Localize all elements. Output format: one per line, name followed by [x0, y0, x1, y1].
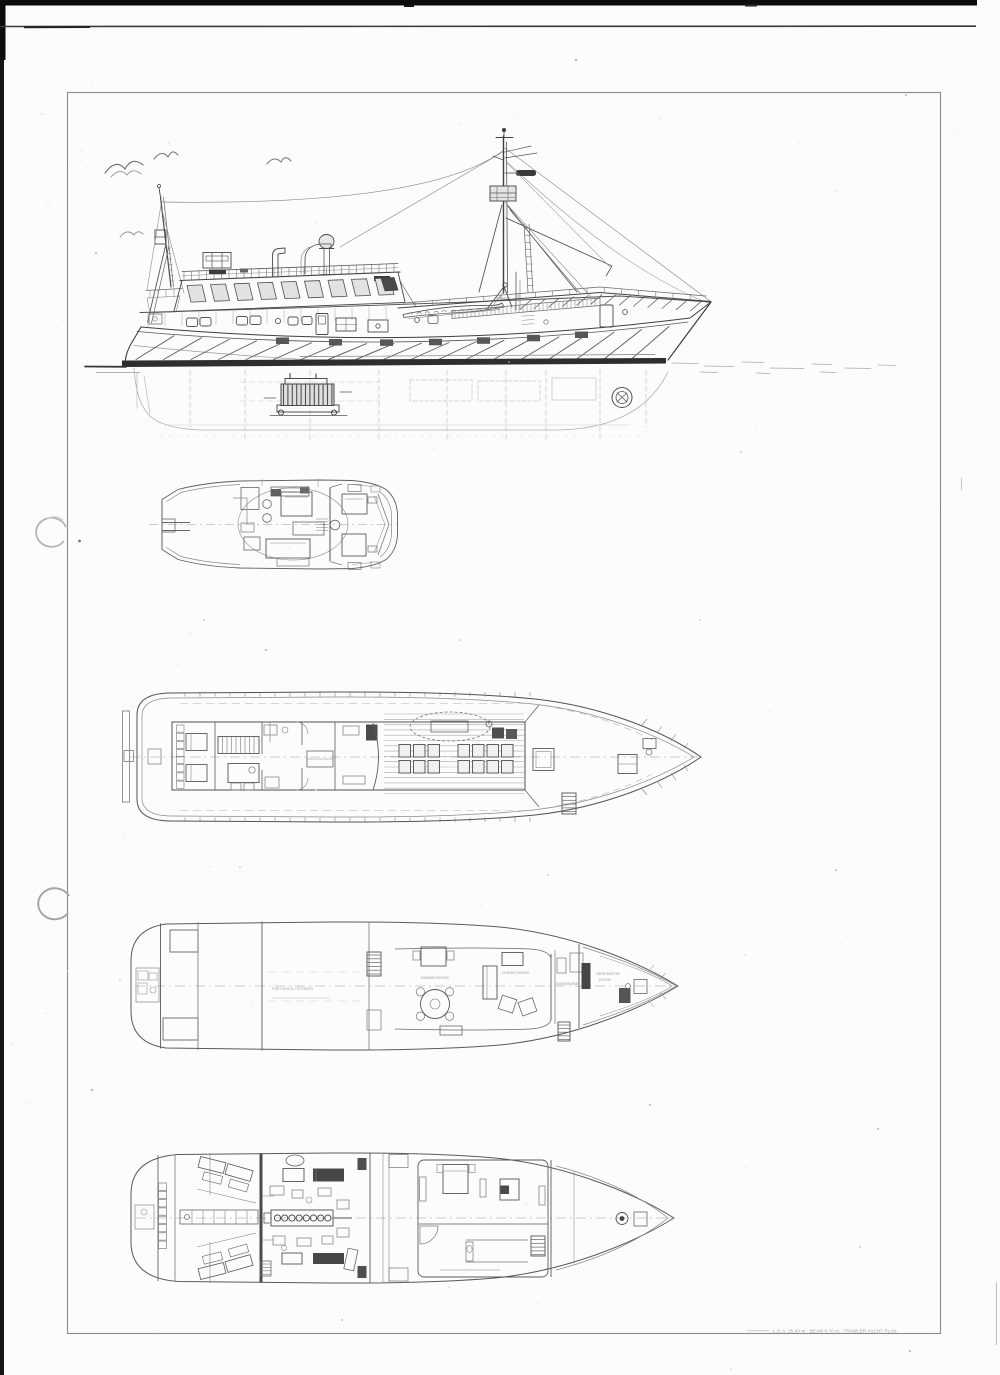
svg-text:FISH HOLD / STORES: FISH HOLD / STORES: [272, 986, 313, 991]
svg-text:DINING ROOM: DINING ROOM: [421, 975, 449, 980]
svg-text:ROOM: ROOM: [599, 978, 611, 982]
svg-text:WARDROBE: WARDROBE: [556, 982, 579, 986]
svg-text:L.O.A. 25.90 m · BEAM 6.70 m ·: L.O.A. 25.90 m · BEAM 6.70 m · TRAWLER Y…: [773, 1329, 897, 1334]
svg-text:GENERATOR: GENERATOR: [596, 972, 620, 976]
svg-text:LIVING ROOM: LIVING ROOM: [502, 970, 529, 975]
